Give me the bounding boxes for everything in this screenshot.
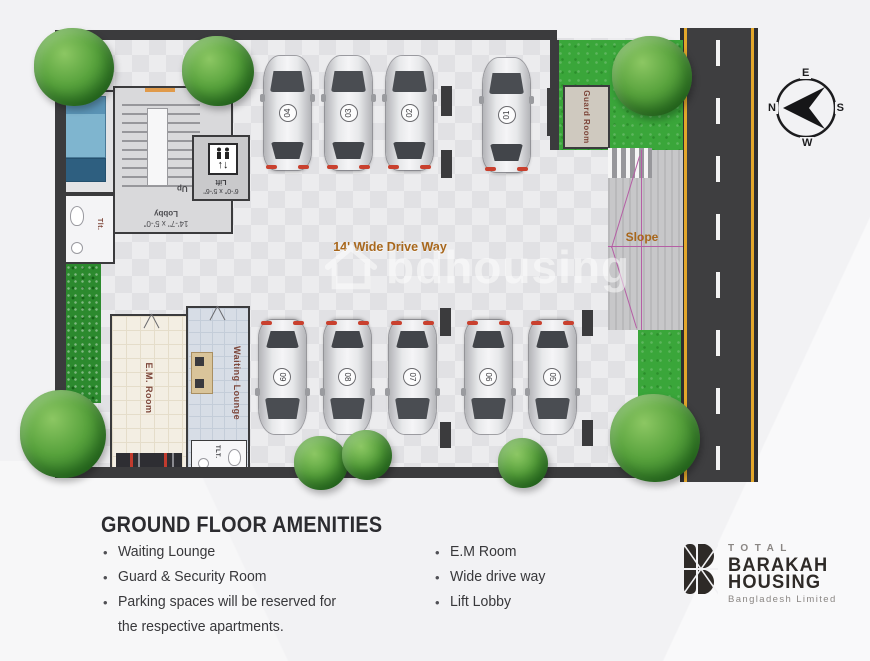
car-taillight — [327, 165, 338, 169]
lift-label: Lift — [196, 177, 246, 186]
car-taillight — [467, 321, 478, 325]
car-rear-window — [331, 331, 364, 348]
amenity-text: Guard & Security Room — [118, 565, 267, 590]
reception-desk — [191, 352, 213, 394]
tree — [20, 390, 106, 478]
car: 01 — [480, 56, 533, 174]
compass-s: S — [835, 102, 846, 114]
car-taillight — [563, 321, 574, 325]
stall-divider — [441, 86, 452, 116]
company-logo: TOTAL BARAKAH HOUSING Bangladesh Limited — [684, 543, 837, 605]
car-mirror — [321, 94, 326, 102]
car-taillight — [499, 321, 510, 325]
tree — [342, 430, 392, 480]
car-mirror — [432, 94, 437, 102]
car-taillight — [293, 321, 304, 325]
car-mirror — [305, 388, 310, 396]
em-room: E.M. Room — [110, 314, 188, 478]
car: 08 — [321, 318, 374, 436]
stair-void — [147, 108, 168, 186]
car-mirror — [371, 94, 376, 102]
car-mirror — [382, 94, 387, 102]
tree — [294, 436, 348, 490]
toilet-fixture — [70, 206, 84, 226]
car-rear-window — [332, 142, 365, 159]
car-taillight — [358, 321, 369, 325]
lobby-label: Lobby — [123, 208, 209, 218]
toilet-fixture — [228, 449, 241, 466]
guard-room-label: Guard Room — [582, 90, 591, 143]
car: 06 — [462, 318, 515, 436]
guard-bed-blanket — [64, 158, 106, 182]
wall-right-upper — [550, 40, 559, 150]
bullet-icon: • — [435, 565, 440, 590]
road-center-dashes — [716, 40, 720, 470]
tree — [610, 394, 700, 482]
amenities-list-1: • Waiting Lounge • Guard & Security Room… — [103, 540, 353, 640]
desk-monitor — [195, 357, 204, 366]
bullet-icon: • — [103, 565, 108, 590]
bullet-icon: • — [103, 590, 108, 640]
road-yellow-line — [751, 28, 754, 482]
wall-top — [55, 30, 557, 40]
car-taillight — [298, 165, 309, 169]
stall-divider — [440, 308, 451, 336]
car-taillight — [261, 321, 272, 325]
car-mirror — [529, 96, 534, 104]
car-taillight — [388, 165, 399, 169]
car-mirror — [320, 388, 325, 396]
car-rear-window — [396, 331, 429, 348]
entry-steps — [608, 148, 652, 178]
list-item: • Waiting Lounge — [103, 540, 353, 565]
lobby-size: 14'-7" x 5'-0" — [123, 218, 209, 228]
car-taillight — [326, 321, 337, 325]
guard-room: Guard Room — [563, 85, 610, 149]
drive-way-label: 14' Wide Drive Way — [290, 240, 490, 254]
bullet-icon: • — [103, 540, 108, 565]
amenity-text: Waiting Lounge — [118, 540, 215, 565]
car-mirror — [255, 388, 260, 396]
car-windshield — [270, 71, 305, 92]
desk-monitor — [195, 379, 204, 388]
lift-label-block: 6'-0" x 5'-6" Lift — [196, 177, 246, 195]
car-windshield — [392, 71, 427, 92]
car: 04 — [261, 54, 314, 172]
car-mirror — [461, 388, 466, 396]
tree — [34, 28, 114, 106]
lift-shaft: 6'-0" x 5'-6" Lift ↑↓ — [192, 135, 250, 201]
compass-e: E — [800, 67, 811, 79]
tree — [498, 438, 548, 488]
logo-text-block: TOTAL BARAKAH HOUSING Bangladesh Limited — [728, 543, 837, 605]
em-room-door — [140, 314, 162, 330]
bullet-icon: • — [435, 590, 440, 615]
car-mirror — [575, 388, 580, 396]
car-rear-window — [490, 144, 523, 161]
list-item: • Parking spaces will be reserved for th… — [103, 590, 353, 640]
car-windshield — [535, 398, 570, 419]
car-windshield — [331, 71, 366, 92]
floor-plan-page: Guard Room Slope E N S W Guard BED Tlt. — [0, 0, 870, 661]
car-mirror — [260, 94, 265, 102]
waiting-lounge-label: Waiting Lounge — [232, 346, 242, 420]
car-mirror — [385, 388, 390, 396]
car-taillight — [420, 165, 431, 169]
car-mirror — [525, 388, 530, 396]
car-windshield — [489, 73, 524, 94]
amenity-text: E.M Room — [450, 540, 516, 565]
car-windshield — [330, 398, 365, 419]
compass-circle-and-arrow — [770, 72, 842, 144]
car-rear-window — [472, 331, 505, 348]
toilet-big-label: TLT. — [214, 445, 220, 459]
parking-number: 04 — [279, 104, 297, 122]
compass-w: W — [800, 137, 814, 149]
logo-total: TOTAL — [728, 543, 837, 554]
amenity-text: Lift Lobby — [450, 590, 511, 615]
bullet-icon: • — [435, 540, 440, 565]
parking-number: 02 — [401, 104, 419, 122]
compass-rose: E N S W — [770, 72, 842, 144]
car-taillight — [423, 321, 434, 325]
stair-up-label: Up — [177, 184, 188, 193]
car-rear-window — [536, 331, 569, 348]
stall-divider — [441, 150, 452, 178]
list-item: • Wide drive way — [435, 565, 635, 590]
road-edge — [754, 28, 758, 482]
list-item: • Guard & Security Room — [103, 565, 353, 590]
lobby-label-block: 14'-7" x 5'-0" Lobby — [123, 208, 209, 228]
em-room-label: E.M. Room — [144, 363, 154, 414]
parking-number: 01 — [498, 106, 516, 124]
lift-size: 6'-0" x 5'-6" — [196, 186, 246, 195]
stall-divider — [582, 310, 593, 336]
tree — [612, 36, 692, 116]
section-title: GROUND FLOOR AMENITIES — [101, 512, 382, 538]
lift-icon: ↑↓ — [208, 143, 238, 175]
car-mirror — [370, 388, 375, 396]
car-mirror — [435, 388, 440, 396]
car-taillight — [391, 321, 402, 325]
amenity-text: Wide drive way — [450, 565, 545, 590]
car-mirror — [479, 96, 484, 104]
car-rear-window — [393, 142, 426, 159]
car-mirror — [511, 388, 516, 396]
car: 02 — [383, 54, 436, 172]
toilet-small-label: Tlt. — [96, 218, 103, 231]
car: 03 — [322, 54, 375, 172]
logo-b-icon — [684, 543, 718, 595]
car-windshield — [265, 398, 300, 419]
car-taillight — [266, 165, 277, 169]
stall-divider — [440, 422, 451, 448]
logo-line2: HOUSING — [728, 574, 832, 591]
stair-marker — [145, 88, 175, 92]
car-windshield — [395, 398, 430, 419]
car-taillight — [517, 167, 528, 171]
car-windshield — [471, 398, 506, 419]
lift-arrows: ↑↓ — [218, 159, 229, 171]
car-mirror — [310, 94, 315, 102]
amenities-list-2: • E.M Room • Wide drive way • Lift Lobby — [435, 540, 635, 615]
list-item: • Lift Lobby — [435, 590, 635, 615]
car: 09 — [256, 318, 309, 436]
parking-number: 03 — [340, 104, 358, 122]
toilet-room-small: Tlt. — [60, 194, 115, 264]
list-item: • E.M Room — [435, 540, 635, 565]
car: 07 — [386, 318, 439, 436]
lift-people-icon — [213, 147, 233, 159]
basin-fixture — [71, 242, 83, 254]
slope-line — [608, 246, 683, 247]
lounge-door — [206, 306, 228, 322]
car-taillight — [359, 165, 370, 169]
stall-divider — [582, 420, 593, 446]
slope-label: Slope — [600, 230, 684, 244]
car: 05 — [526, 318, 579, 436]
car-rear-window — [271, 142, 304, 159]
waiting-lounge: Waiting Lounge TLT. — [186, 306, 250, 478]
car-rear-window — [266, 331, 299, 348]
amenity-text: Parking spaces will be reserved for the … — [118, 590, 346, 640]
logo-subtitle: Bangladesh Limited — [728, 594, 837, 605]
compass-n: N — [766, 102, 778, 114]
car-taillight — [485, 167, 496, 171]
tree — [182, 36, 254, 106]
car-taillight — [531, 321, 542, 325]
